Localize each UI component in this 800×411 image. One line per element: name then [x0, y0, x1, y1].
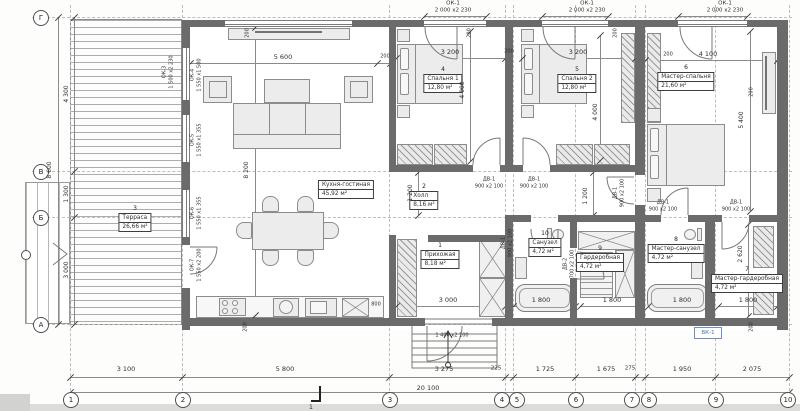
room-label-bathroom: 10 Санузел4,72 м²: [528, 230, 561, 257]
room-label-entry: 1 Прихожая8,18 м²: [420, 242, 459, 269]
grid-label: 10: [784, 396, 793, 404]
room-area: 4,72 м²: [529, 248, 560, 256]
door-swing: [722, 222, 749, 249]
grid-bubble-col: 10: [780, 392, 796, 408]
opening-code: ДВ-1: [614, 187, 619, 199]
dim-text: 1 675: [597, 366, 616, 373]
dim-text: 1 300: [64, 185, 70, 202]
dim-text: 275: [625, 366, 636, 372]
opening-size: 900 х2 100: [520, 185, 548, 190]
dim-text: 200: [504, 50, 514, 55]
room-name: Мастер-санузел: [649, 245, 704, 254]
opening-code: ОК-7: [191, 259, 196, 271]
room-name: Мастер-гардеробная: [712, 275, 782, 284]
room-name: Спальня 1: [424, 75, 461, 84]
door-threshold: [425, 319, 492, 324]
opening-code: ОК-6: [191, 207, 196, 219]
room-label-terrace: 3 Терраса26,66 м²: [118, 205, 151, 232]
room-number: 2: [422, 183, 426, 190]
riser-mark: ВК-1: [694, 327, 722, 339]
opening-code: ДВ-2: [564, 258, 569, 270]
room-number: 10: [541, 230, 549, 237]
dim-text: 1 800: [673, 297, 692, 304]
room-number: 8: [674, 236, 678, 243]
dim-text: 200: [750, 87, 755, 97]
opening-size: 700 х2 100: [571, 250, 576, 278]
opening-size: 1 550 х2 200: [198, 248, 203, 281]
section-mark: [311, 386, 320, 402]
dim-text: 8 600: [47, 161, 53, 178]
room-name: Холл: [410, 192, 437, 201]
grid-bubble-col: 6: [568, 392, 584, 408]
room-number: 6: [684, 64, 688, 71]
opening-code: ОК-3: [163, 66, 168, 78]
dim-text: 200: [468, 28, 473, 38]
room-label-bedroom1: 4 Спальня 112,80 м²: [423, 66, 462, 93]
opening-size: 900 х2 100: [722, 208, 750, 213]
dim-text: 3 100: [117, 366, 136, 373]
dim-text: 3 200: [569, 49, 588, 56]
dim-text: 5 600: [274, 54, 293, 61]
grid-label: 8: [647, 396, 651, 404]
grid-bubble-col: 8: [641, 392, 657, 408]
dim-text: 4 000: [593, 103, 599, 120]
floor-plan: 1 2 3 4 5 6 7 8 9 10 Г В Б А 3 Терраса26…: [0, 0, 800, 411]
opening-code: ОК-5: [191, 134, 196, 146]
room-name: Мастер-спальня: [658, 73, 713, 82]
dim-text: 3 000: [439, 297, 458, 304]
dim-text: 200: [614, 28, 619, 38]
axis-marker: [21, 250, 31, 260]
dim-text: 4 300: [64, 85, 70, 102]
room-name: Кухня-гостиная: [319, 181, 373, 190]
opening-size: 900 х2 100: [649, 208, 677, 213]
grid-label: 4: [500, 396, 504, 404]
room-number: 4: [441, 66, 445, 73]
room-area: 8,18 м²: [421, 260, 458, 268]
opening-size: 1 550 х1 355: [198, 123, 203, 156]
grid-label: 9: [714, 396, 718, 404]
dim-text: 4 000: [460, 81, 466, 98]
door-swing: [473, 138, 500, 165]
door-size-text: 1 400 х2 100: [435, 334, 468, 339]
dim-text: 3 275: [435, 366, 454, 373]
grid-bubble-row: Г: [33, 10, 49, 26]
room-number: 1: [438, 242, 442, 249]
room-label-bedroom2: 5 Спальня 212,80 м²: [557, 66, 596, 93]
room-name: Спальня 2: [558, 75, 595, 84]
grid-label: 3: [388, 396, 392, 404]
room-area: 45,92 м²: [319, 190, 373, 198]
dim-text: 5 400: [739, 111, 745, 128]
room-label-master-bedroom: 6 Мастер-спальня21,60 м²: [657, 64, 714, 91]
grid-label: Г: [39, 14, 43, 22]
grid-bubble-row: А: [33, 317, 49, 333]
dim-text: 1 800: [603, 297, 622, 304]
opening-code: ОК-4: [191, 69, 196, 81]
dim-text: 1 200: [583, 187, 589, 204]
grid-bubble-col: 1: [63, 392, 79, 408]
room-area: 21,60 м²: [658, 82, 713, 90]
opening-size: 900 х2 100: [509, 229, 514, 257]
section-number: 1: [309, 404, 313, 411]
dim-text: 3 000: [64, 261, 70, 278]
opening-size: 2 000 х2 230: [707, 8, 744, 14]
dim-text: 1 800: [739, 297, 758, 304]
dim-text: 200: [380, 55, 390, 60]
grid-bubble-row: Б: [33, 210, 49, 226]
room-name: Прихожая: [421, 251, 458, 260]
room-area: 26,66 м²: [119, 223, 150, 231]
opening-code: ОК-1: [580, 1, 594, 7]
opening-size: 900 х2 100: [475, 185, 503, 190]
opening-code: ДВ-1: [528, 178, 540, 183]
room-label-master-closet: 7 Мастер-гардеробная4,72 м²: [711, 266, 783, 293]
room-number: 5: [575, 66, 579, 73]
grid-bubble-col: 5: [509, 392, 525, 408]
opening-size: 900 х2 100: [621, 179, 626, 207]
room-number: 9: [598, 245, 602, 252]
room-area: 4,72 м²: [577, 263, 623, 271]
room-name: Терраса: [119, 214, 150, 223]
room-label-master-bathroom: 8 Мастер-санузел4,72 м²: [648, 236, 705, 263]
grid-bubble-col: 3: [382, 392, 398, 408]
grid-label: А: [39, 321, 44, 329]
opening-code: ДВ-1: [657, 201, 669, 206]
opening-size: 2 000 х2 230: [569, 8, 606, 14]
grid-label: 6: [574, 396, 578, 404]
grid-label: 7: [630, 396, 634, 404]
opening-size: 1 500 х2 230: [170, 55, 175, 88]
opening-size: 1 550 х1 355: [198, 196, 203, 229]
dim-text: 200: [244, 322, 249, 332]
room-number: 7: [745, 266, 749, 273]
opening-code: ОК-1: [446, 1, 460, 7]
room-name: Гардеробная: [577, 254, 623, 263]
dim-text: 200: [663, 53, 673, 58]
room-area: 12,80 м²: [424, 84, 461, 92]
door-swing: [523, 138, 550, 165]
room-area: 8,16 м²: [410, 201, 437, 209]
grid-bubble-col: 2: [175, 392, 191, 408]
dim-text: 200: [750, 322, 755, 332]
room-label-kitchen-living: Кухня-гостиная45,92 м²: [318, 180, 374, 199]
grid-label: В: [39, 168, 44, 176]
grid-label: 1: [69, 396, 73, 404]
dim-text: 3 200: [441, 49, 460, 56]
grid-label: 2: [181, 396, 185, 404]
opening-size: 2 000 х2 230: [435, 8, 472, 14]
grid-label: 5: [515, 396, 519, 404]
entry-door-swing: [427, 326, 462, 361]
dim-text: 1 950: [673, 366, 692, 373]
dim-text: 2 620: [738, 245, 744, 262]
room-label-closet: 9 Гардеробная4,72 м²: [576, 245, 624, 272]
room-area: 4,72 м²: [649, 254, 704, 262]
dim-text: 200: [246, 28, 251, 38]
grid-bubble-col: 4: [494, 392, 510, 408]
room-area: 4,72 м²: [712, 284, 782, 292]
room-number: 3: [133, 205, 137, 212]
opening-size: 1 550 х1 500: [198, 58, 203, 91]
dim-text: 1 800: [532, 297, 551, 304]
dim-text: 800: [371, 303, 381, 308]
room-name: Санузел: [529, 239, 560, 248]
dim-text: 2 075: [743, 366, 762, 373]
room-area: 12,80 м²: [558, 84, 595, 92]
grid-bubble-col: 7: [624, 392, 640, 408]
dim-text: 1 200: [408, 184, 414, 201]
dim-text: 4 100: [699, 51, 718, 58]
grid-bubble-col: 9: [708, 392, 724, 408]
opening-code: ДВ-1: [502, 237, 507, 249]
opening-code: ДВ-1: [730, 201, 742, 206]
opening-code: ОК-1: [718, 1, 732, 7]
riser-label: ВК-1: [701, 330, 714, 336]
dim-text: 1 725: [536, 366, 555, 373]
dim-text-total: 20 100: [417, 385, 440, 392]
opening-code: ДВ-1: [483, 178, 495, 183]
dim-text: 225: [491, 366, 502, 372]
dim-text: 8 200: [244, 161, 250, 178]
grid-label: Б: [39, 214, 44, 222]
dim-text: 5 800: [276, 366, 295, 373]
